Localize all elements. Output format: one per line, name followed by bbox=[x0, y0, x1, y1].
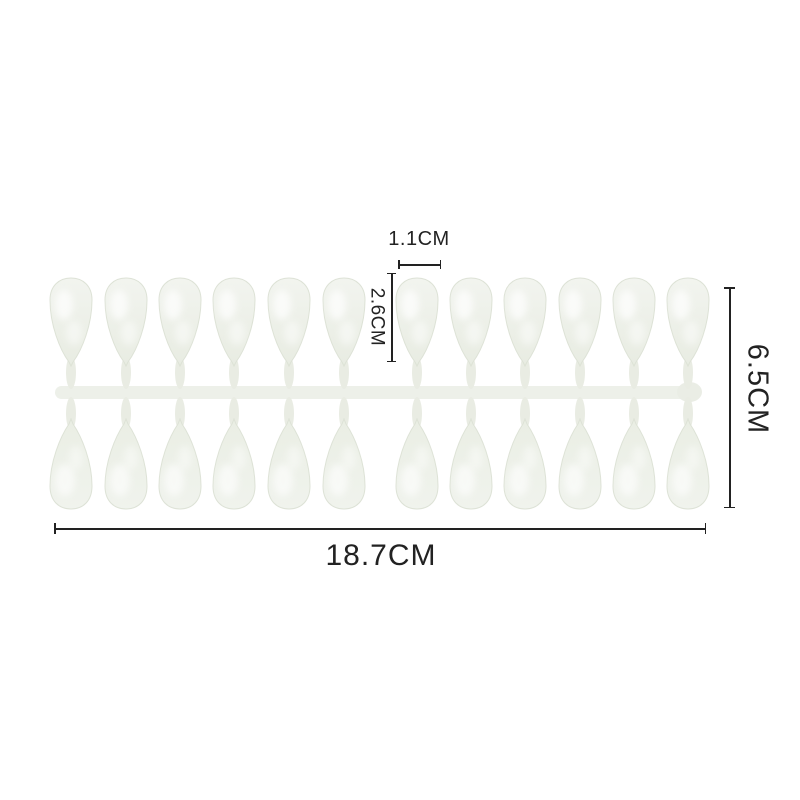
nail-tip bbox=[391, 418, 443, 510]
nail-tip bbox=[100, 418, 152, 510]
dim-tip-length-label: 2.6CM bbox=[368, 288, 387, 346]
dim-tick bbox=[387, 361, 396, 363]
nail-tip bbox=[662, 418, 714, 510]
dim-total-height-label: 6.5CM bbox=[743, 344, 772, 434]
dim-tick bbox=[705, 523, 707, 534]
nail-tip bbox=[499, 418, 551, 510]
dim-tick bbox=[724, 507, 735, 509]
nail-tip bbox=[663, 277, 713, 367]
dim-total-width-line bbox=[54, 528, 706, 530]
dim-tick bbox=[387, 273, 396, 275]
nail-tip bbox=[554, 418, 606, 510]
nail-tip bbox=[155, 277, 205, 367]
nail-tip bbox=[318, 418, 370, 510]
nail-tip bbox=[264, 277, 314, 367]
dim-tip-width-line bbox=[398, 264, 441, 266]
dim-tip-length-line bbox=[391, 273, 393, 362]
nail-tip bbox=[208, 418, 260, 510]
nail-tip bbox=[101, 277, 151, 367]
nail-tip bbox=[45, 418, 97, 510]
nail-tip bbox=[555, 277, 605, 367]
dim-tip-width-label: 1.1CM bbox=[388, 229, 449, 249]
dim-tick bbox=[54, 523, 56, 534]
nail-tip bbox=[319, 277, 369, 367]
nail-tip bbox=[608, 418, 660, 510]
sprue-bar bbox=[55, 386, 701, 399]
dim-total-height-line bbox=[729, 288, 731, 508]
nail-tip bbox=[609, 277, 659, 367]
dim-tick bbox=[398, 260, 400, 269]
dim-tick bbox=[440, 260, 442, 269]
nail-tip bbox=[263, 418, 315, 510]
nail-tip bbox=[500, 277, 550, 367]
dim-tick bbox=[724, 287, 735, 289]
nail-tip bbox=[154, 418, 206, 510]
nail-tip bbox=[392, 277, 442, 367]
nail-tip bbox=[445, 418, 497, 510]
nail-tip bbox=[46, 277, 96, 367]
nail-tip bbox=[446, 277, 496, 367]
dim-total-width-label: 18.7CM bbox=[325, 541, 436, 571]
nail-tip bbox=[209, 277, 259, 367]
product-dimension-image: 1.1CM 2.6CM 6.5CM 18.7CM bbox=[0, 0, 800, 800]
